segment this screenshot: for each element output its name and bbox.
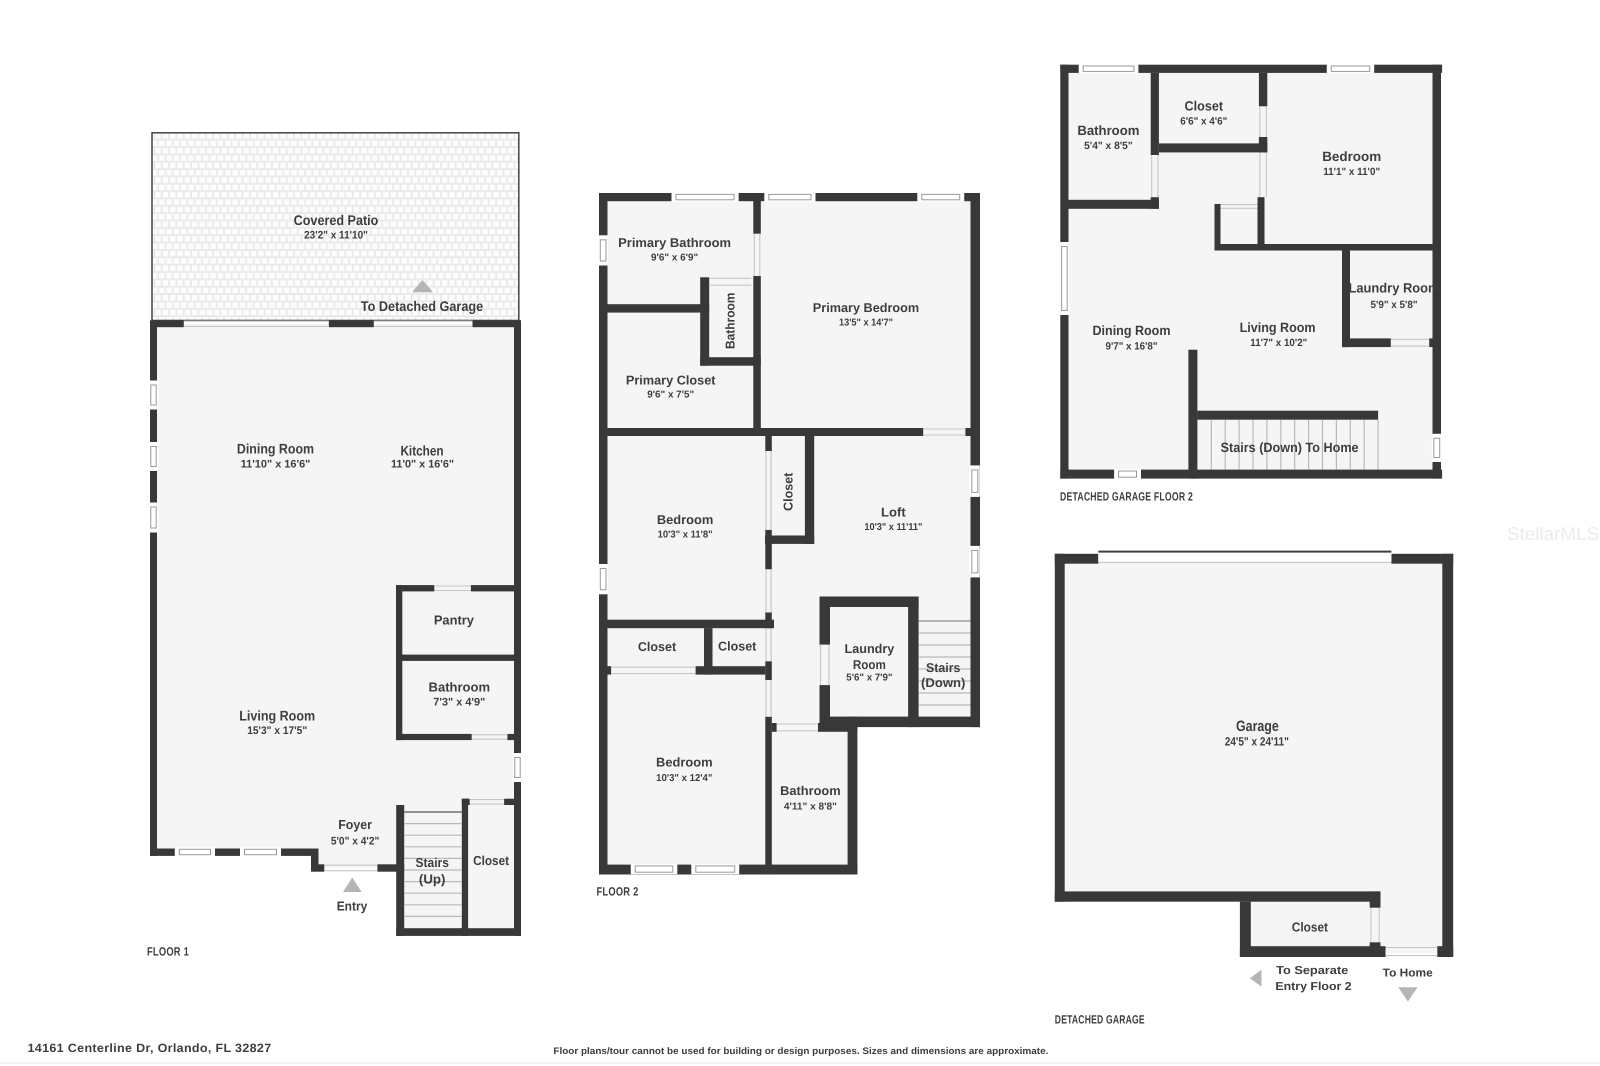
svg-text:Stairs: Stairs <box>415 855 449 870</box>
svg-text:To Home: To Home <box>1383 968 1433 980</box>
svg-text:Dining Room: Dining Room <box>1093 323 1171 338</box>
svg-text:Kitchen: Kitchen <box>400 443 443 459</box>
svg-text:Dining Room: Dining Room <box>237 441 314 457</box>
svg-text:Entry: Entry <box>337 899 368 914</box>
svg-text:Bathroom: Bathroom <box>780 783 841 798</box>
svg-text:10'3" x 12'4": 10'3" x 12'4" <box>656 773 713 784</box>
svg-text:23'2" x 11'10": 23'2" x 11'10" <box>304 229 368 241</box>
svg-text:Closet: Closet <box>1185 98 1224 113</box>
svg-text:13'5" x 14'7": 13'5" x 14'7" <box>839 317 893 328</box>
svg-text:Bedroom: Bedroom <box>656 755 713 770</box>
svg-text:Primary Bedroom: Primary Bedroom <box>813 300 919 315</box>
svg-text:Floor plans/tour cannot be use: Floor plans/tour cannot be used for buil… <box>553 1046 1048 1057</box>
svg-text:Pantry: Pantry <box>434 613 475 628</box>
svg-text:6'6" x 4'6": 6'6" x 4'6" <box>1180 115 1227 127</box>
svg-text:Closet: Closet <box>638 639 677 654</box>
svg-text:Closet: Closet <box>1292 919 1329 934</box>
svg-text:FLOOR 1: FLOOR 1 <box>147 945 189 959</box>
svg-text:Primary Bathroom: Primary Bathroom <box>618 235 731 250</box>
svg-text:11'10" x 16'6": 11'10" x 16'6" <box>241 459 311 471</box>
svg-text:Bathroom: Bathroom <box>722 293 737 349</box>
svg-text:24'5" x 24'11": 24'5" x 24'11" <box>1225 735 1289 749</box>
svg-text:Living Room: Living Room <box>1240 320 1316 335</box>
svg-text:Bathroom: Bathroom <box>1077 123 1139 138</box>
svg-text:Foyer: Foyer <box>338 817 372 832</box>
svg-text:5'0" x 4'2": 5'0" x 4'2" <box>331 835 380 847</box>
svg-text:Stairs: Stairs <box>926 660 961 675</box>
svg-text:Closet: Closet <box>718 639 757 654</box>
svg-text:Covered Patio: Covered Patio <box>294 212 379 228</box>
svg-text:14161 Centerline Dr, Orlando,: 14161 Centerline Dr, Orlando, FL 32827 <box>28 1041 272 1055</box>
svg-text:5'6" x 7'9": 5'6" x 7'9" <box>846 673 892 684</box>
svg-text:Closet: Closet <box>473 853 510 868</box>
svg-text:11'7" x 10'2": 11'7" x 10'2" <box>1250 337 1307 349</box>
svg-text:DETACHED GARAGE: DETACHED GARAGE <box>1055 1013 1145 1027</box>
svg-text:11'0" x 16'6": 11'0" x 16'6" <box>391 459 454 471</box>
svg-text:7'3" x 4'9": 7'3" x 4'9" <box>433 697 485 709</box>
svg-text:11'1" x 11'0": 11'1" x 11'0" <box>1323 166 1380 178</box>
svg-text:15'3" x 17'5": 15'3" x 17'5" <box>247 725 307 737</box>
svg-text:(Down): (Down) <box>921 675 965 690</box>
svg-text:Laundry Room: Laundry Room <box>1349 281 1440 296</box>
svg-text:Room: Room <box>853 657 886 672</box>
svg-text:Garage: Garage <box>1236 718 1279 735</box>
svg-text:9'6" x 7'5": 9'6" x 7'5" <box>647 390 694 401</box>
svg-text:Stairs (Down) To Home: Stairs (Down) To Home <box>1221 440 1359 455</box>
svg-text:DETACHED GARAGE FLOOR 2: DETACHED GARAGE FLOOR 2 <box>1060 490 1193 504</box>
svg-text:Living Room: Living Room <box>239 707 315 723</box>
svg-text:To Detached Garage: To Detached Garage <box>361 298 484 314</box>
svg-text:Entry Floor 2: Entry Floor 2 <box>1275 981 1351 993</box>
svg-text:5'4" x 8'5": 5'4" x 8'5" <box>1084 140 1133 152</box>
svg-text:9'6" x 6'9": 9'6" x 6'9" <box>651 252 698 263</box>
svg-text:10'3" x 11'11": 10'3" x 11'11" <box>864 522 922 533</box>
svg-text:FLOOR 2: FLOOR 2 <box>597 884 639 898</box>
svg-text:(Up): (Up) <box>419 872 446 887</box>
svg-text:Laundry: Laundry <box>845 641 896 656</box>
svg-text:10'3" x 11'8": 10'3" x 11'8" <box>658 530 713 541</box>
svg-text:To Separate: To Separate <box>1276 965 1348 977</box>
svg-text:4'11" x 8'8": 4'11" x 8'8" <box>784 801 837 812</box>
svg-text:Bathroom: Bathroom <box>429 679 491 694</box>
svg-text:5'9" x 5'8": 5'9" x 5'8" <box>1371 299 1418 311</box>
svg-text:Bedroom: Bedroom <box>657 512 714 527</box>
svg-text:Primary Closet: Primary Closet <box>626 373 716 388</box>
svg-text:Loft: Loft <box>881 505 906 520</box>
svg-text:Closet: Closet <box>781 472 796 511</box>
svg-text:Bedroom: Bedroom <box>1322 149 1381 164</box>
svg-text:9'7" x 16'8": 9'7" x 16'8" <box>1106 341 1158 353</box>
svg-text:StellarMLS: StellarMLS <box>1507 523 1599 544</box>
